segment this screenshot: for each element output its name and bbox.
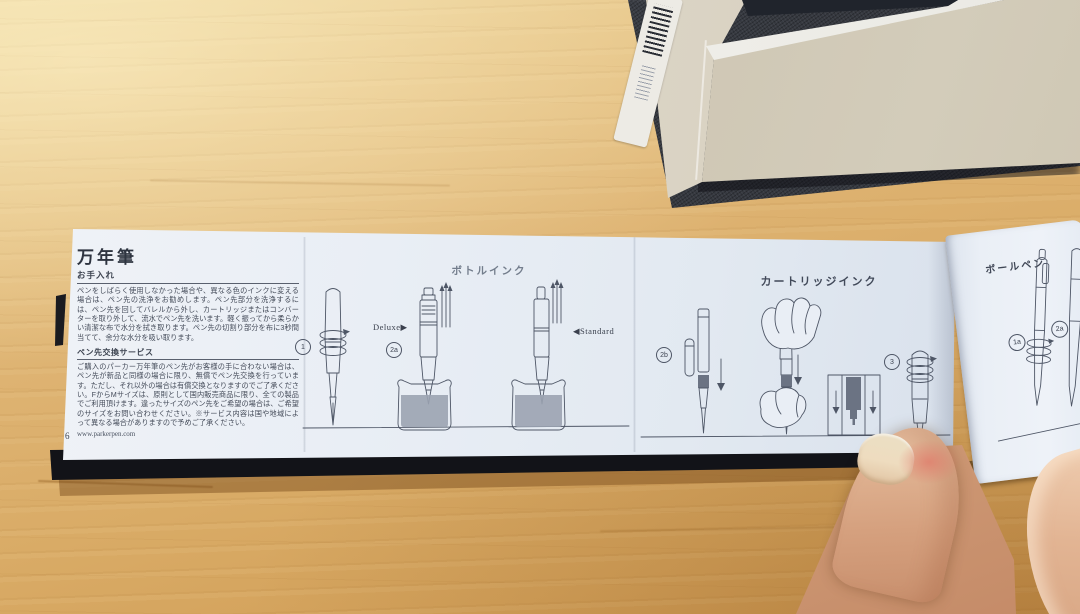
photo-of-desk-scene: 万年筆 お手入れ ペンをしばらく使用しなかった場合や、異なる色のインクに変える場…: [0, 0, 1080, 614]
bottle-ink-diagrams: [303, 279, 629, 430]
fingertip-blush: [898, 440, 960, 484]
manual-open-page: 万年筆 お手入れ ペンをしばらく使用しなかった場合や、異なる色のインクに変える場…: [57, 227, 962, 467]
label-fine-print: [634, 64, 656, 100]
instruction-diagrams: [57, 227, 962, 467]
ballpoint-pen-1a: [1025, 249, 1057, 406]
cartridge-ink-diagrams: [641, 298, 950, 445]
ballpoint-pen-2a: [1067, 248, 1080, 406]
barcode: [642, 3, 674, 56]
